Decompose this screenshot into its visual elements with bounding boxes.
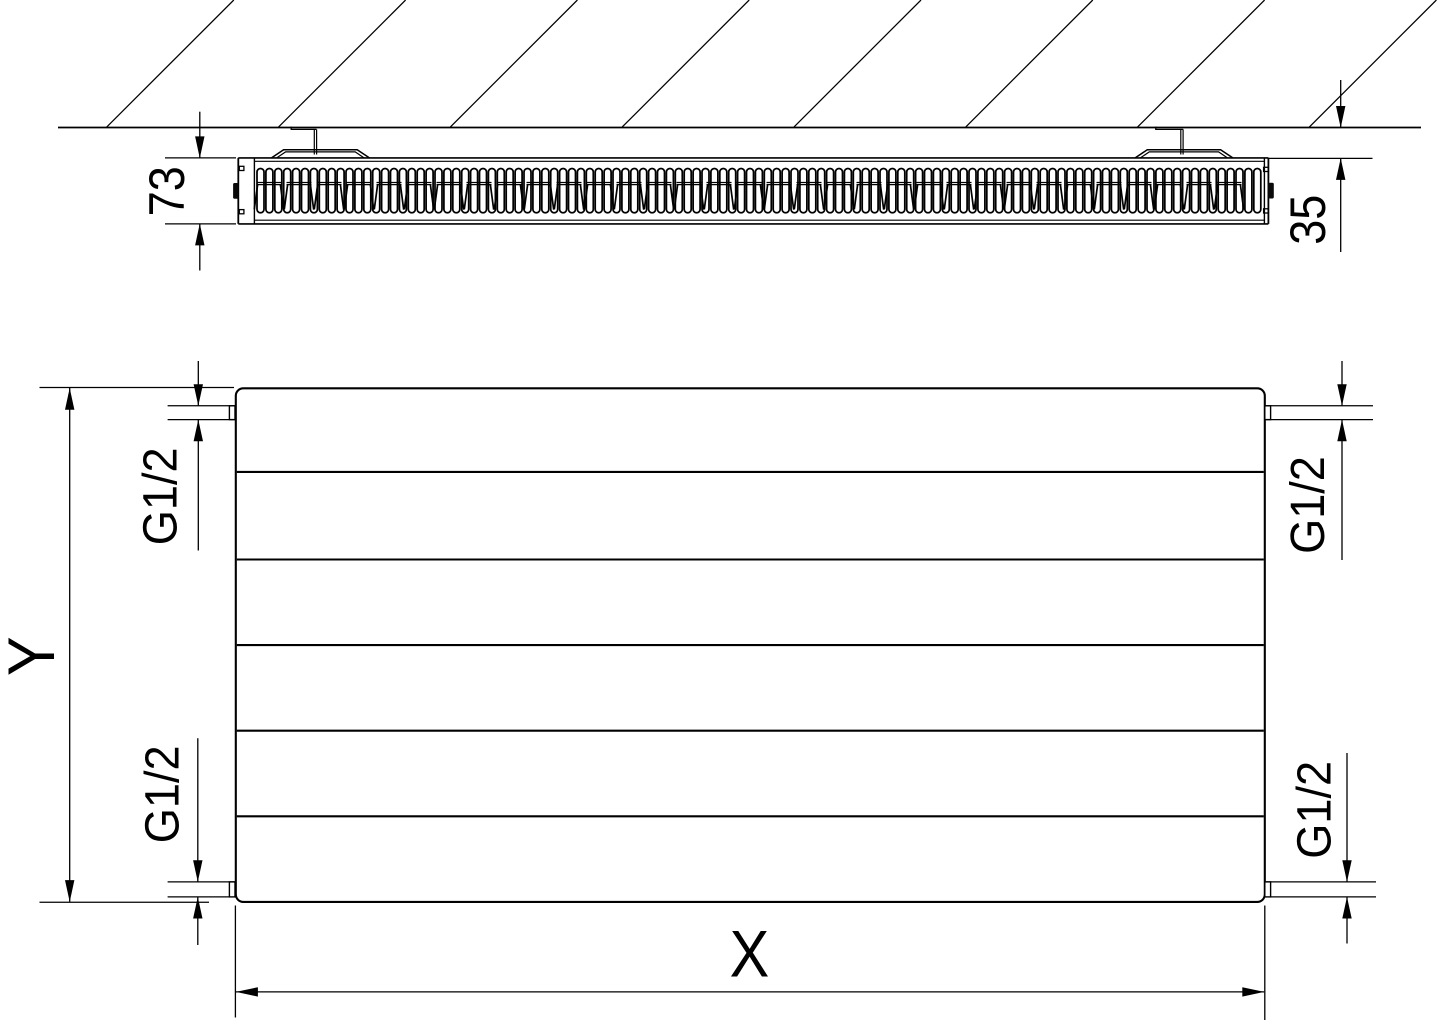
svg-text:X: X — [730, 918, 770, 992]
svg-text:G1/2: G1/2 — [1281, 456, 1335, 554]
svg-text:73: 73 — [140, 166, 196, 216]
svg-text:G1/2: G1/2 — [135, 745, 189, 843]
svg-text:G1/2: G1/2 — [133, 447, 187, 545]
svg-text:35: 35 — [1281, 195, 1337, 245]
svg-text:Y: Y — [0, 636, 69, 676]
svg-text:G1/2: G1/2 — [1287, 761, 1341, 859]
